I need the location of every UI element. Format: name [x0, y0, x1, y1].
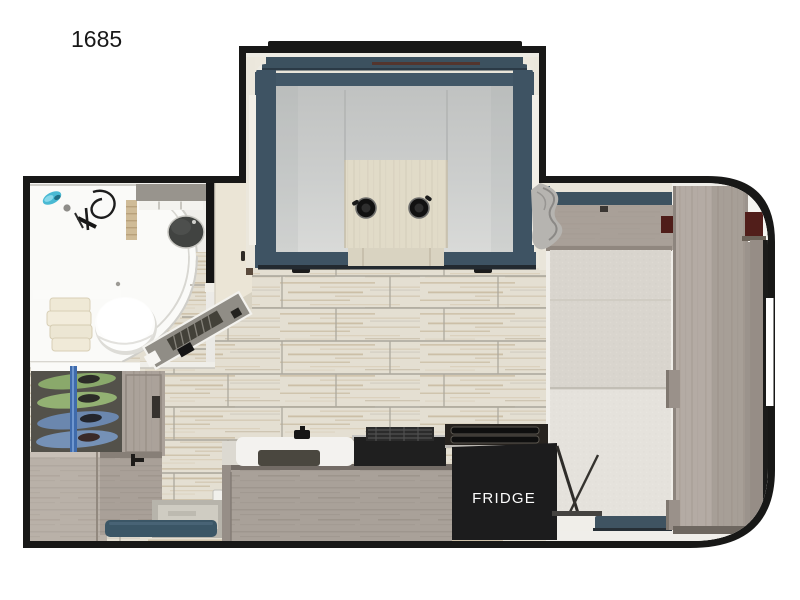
svg-text:1685: 1685: [71, 26, 122, 52]
svg-text:FRIDGE: FRIDGE: [472, 490, 536, 507]
